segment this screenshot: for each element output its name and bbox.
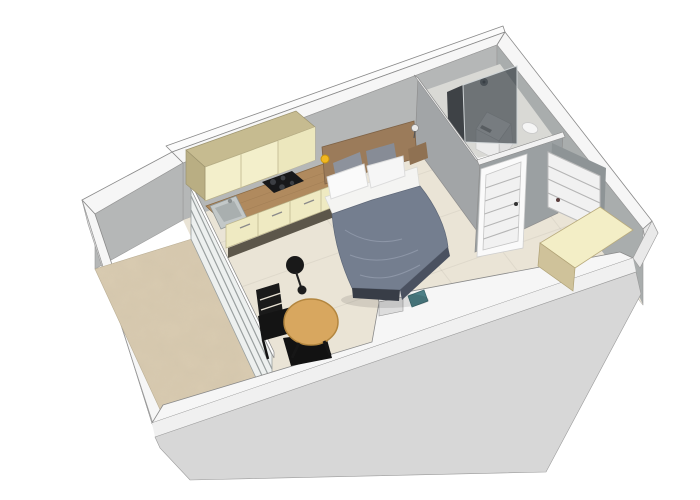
entry-door-handle xyxy=(556,198,560,202)
bathroom-door-handle xyxy=(514,202,518,206)
pendant-lamp-bulb xyxy=(298,286,307,295)
yellow-wall-lamp xyxy=(321,155,329,163)
sink-faucet xyxy=(228,199,232,203)
wall-sconce xyxy=(412,125,419,132)
floorplan-stage xyxy=(0,0,700,500)
floorplan-svg xyxy=(0,0,700,500)
round-table-top xyxy=(284,299,338,345)
pendant-lamp-disc xyxy=(286,256,304,274)
